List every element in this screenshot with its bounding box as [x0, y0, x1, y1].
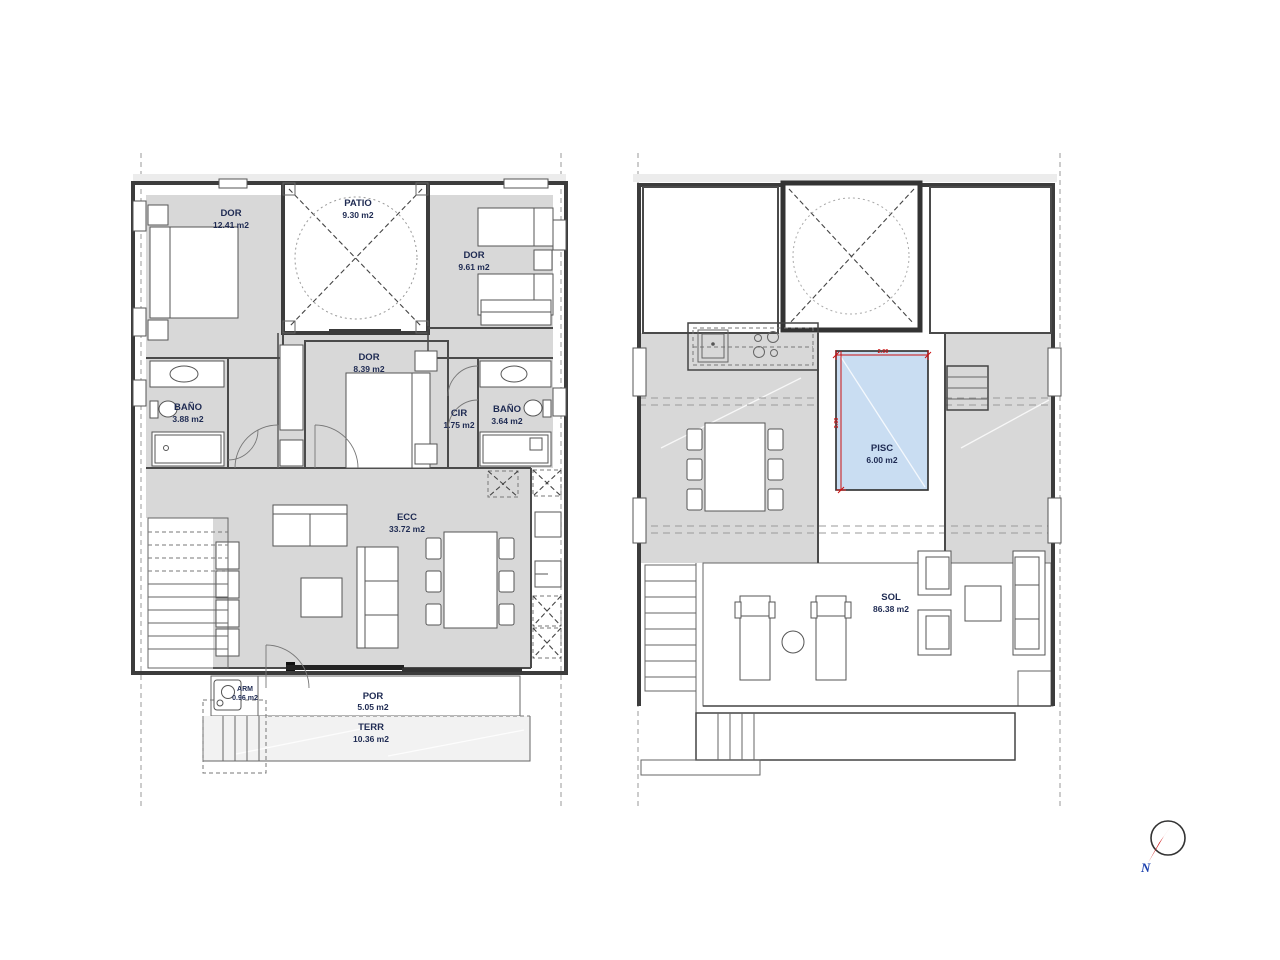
compass-north-label: N [1140, 860, 1151, 875]
compass-circle [1151, 821, 1185, 855]
solarium-furniture: SOL 86.38 m2 [735, 551, 1045, 680]
patio-shaft [783, 183, 920, 330]
room-area-pisc: 6.00 m2 [866, 455, 897, 465]
pool-height-dim: 3.00 [834, 418, 840, 429]
coffee-table-square [965, 586, 1001, 621]
lower-terrace-band [641, 706, 1051, 775]
room-label-dor-3: DOR [358, 352, 379, 363]
sofa [1013, 551, 1045, 655]
dining-table [444, 532, 497, 628]
room-area-dor-1: 12.41 m2 [213, 220, 249, 230]
room-area-cir: 1.75 m2 [443, 420, 474, 430]
room-area-sol: 86.38 m2 [873, 604, 909, 614]
room-label-por: POR [363, 691, 384, 702]
roof-eave [133, 174, 566, 182]
room-label-arm: ARM [237, 686, 253, 693]
swimming-pool: 2.00 3.00 PISC 6.00 m2 [833, 349, 931, 493]
room-label-sol: SOL [881, 592, 901, 603]
sun-lounger-2 [811, 596, 851, 680]
room-area-bano-1: 3.88 m2 [172, 414, 203, 424]
room-label-terr: TERR [358, 722, 384, 733]
room-label-cir: CIR [451, 408, 468, 419]
room-area-dor-2: 9.61 m2 [458, 262, 489, 272]
roof-dining-table [687, 423, 783, 511]
compass-needle-icon [1148, 819, 1176, 863]
room-area-bano-2: 3.64 m2 [491, 416, 522, 426]
room-label-dor-1: DOR [220, 208, 241, 219]
room-area-arm: 0.96 m2 [232, 695, 258, 702]
ground-floor-plan: DOR 12.41 m2 PATIO 9.30 m2 DOR 9.61 m2 D… [126, 148, 576, 820]
room-label-patio: PATIO [344, 198, 372, 209]
room-label-dor-2: DOR [463, 250, 484, 261]
room-label-bano-2: BAÑO [493, 404, 521, 415]
room-label-bano-1: BAÑO [174, 402, 202, 413]
room-label-pisc: PISC [871, 443, 893, 454]
roof-solarium-plan: 2.00 3.00 PISC 6.00 m2 [621, 148, 1073, 820]
north-compass: N [1128, 804, 1203, 879]
patio-grille [329, 329, 401, 335]
room-label-ecc: ECC [397, 512, 417, 523]
pool-width-dim: 2.00 [878, 349, 889, 355]
side-table-round [782, 631, 804, 653]
floor-plan-sheet: DOR 12.41 m2 PATIO 9.30 m2 DOR 9.61 m2 D… [0, 0, 1280, 960]
sun-lounger-1 [735, 596, 775, 680]
room-area-ecc: 33.72 m2 [389, 524, 425, 534]
room-area-por: 5.05 m2 [357, 702, 388, 712]
room-area-terr: 10.36 m2 [353, 734, 389, 744]
armchair-2 [918, 610, 951, 655]
room-area-patio: 9.30 m2 [342, 210, 373, 220]
armchair-1 [918, 551, 951, 595]
room-area-dor-3: 8.39 m2 [353, 364, 384, 374]
